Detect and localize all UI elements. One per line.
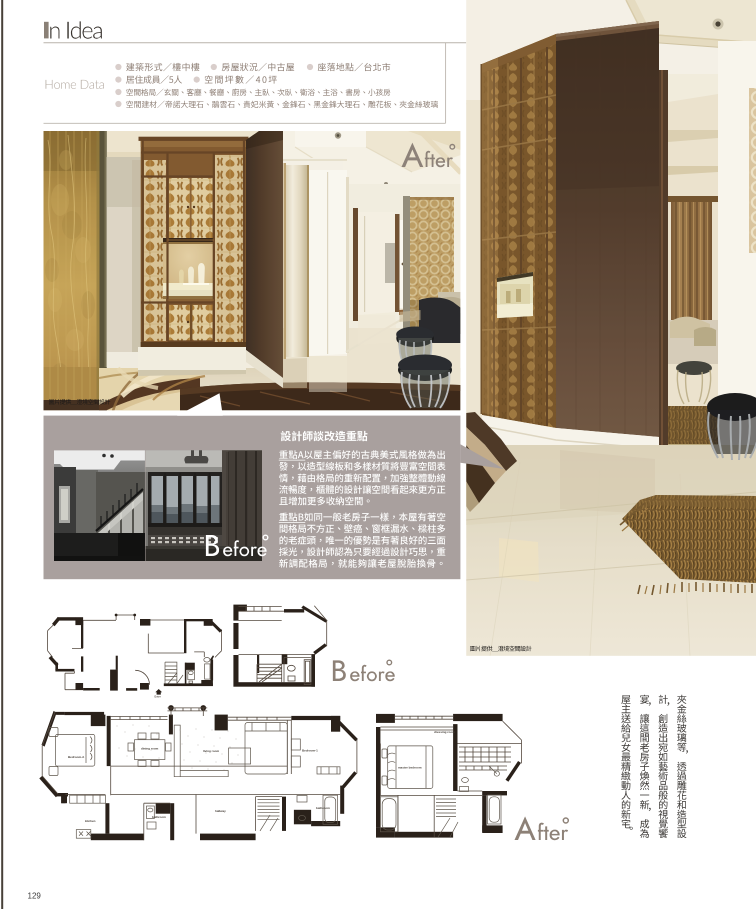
svg-text:bathroom: bathroom	[152, 815, 166, 819]
svg-text:kitchen: kitchen	[85, 819, 96, 823]
svg-text:dressing room: dressing room	[434, 730, 455, 734]
svg-text:dining room: dining room	[141, 747, 159, 751]
svg-text:hallway: hallway	[215, 809, 226, 813]
svg-text:129: 129	[28, 892, 42, 901]
svg-text:Bedroom-1: Bedroom-1	[302, 749, 318, 753]
svg-text:bathroom: bathroom	[316, 806, 330, 810]
svg-text:living room: living room	[203, 749, 220, 753]
svg-text:Bedroom-A: Bedroom-A	[68, 755, 85, 759]
svg-text:master bedroom: master bedroom	[398, 766, 422, 770]
svg-text:Enter: Enter	[155, 695, 161, 699]
